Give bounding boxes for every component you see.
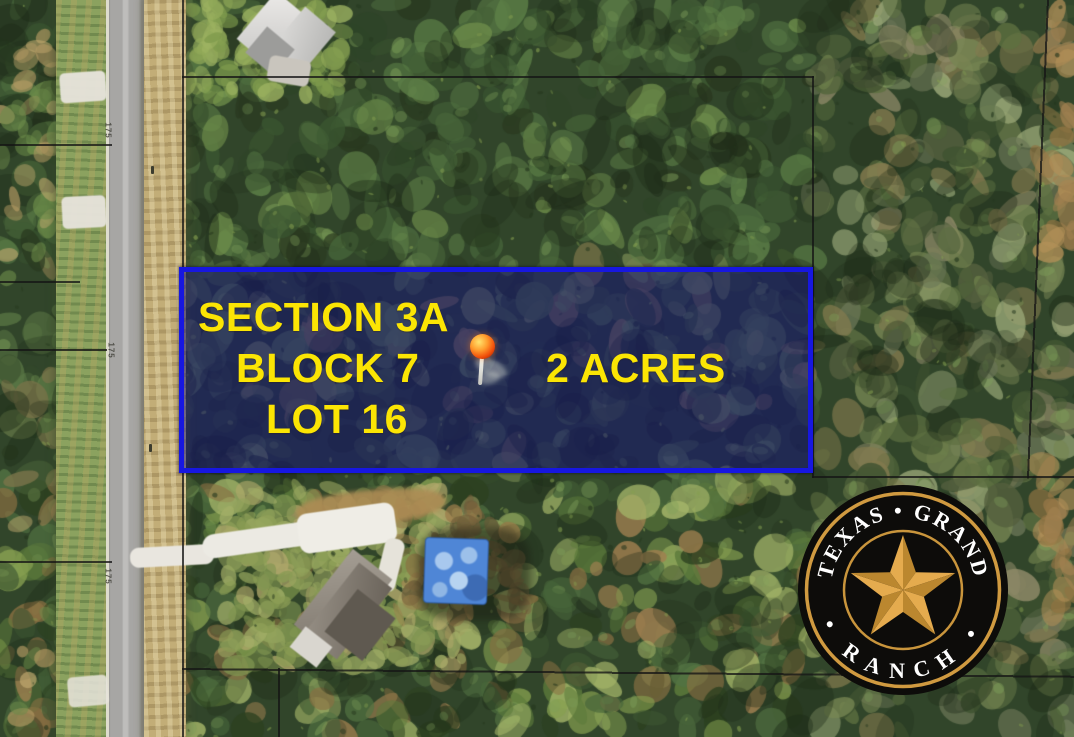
road	[56, 0, 186, 737]
parcel-line	[182, 76, 814, 78]
parcel-line	[0, 281, 80, 283]
parcel-line	[278, 668, 280, 737]
pin-head	[470, 334, 495, 359]
parcel-line	[0, 349, 107, 351]
pool-cover	[423, 537, 489, 605]
parcel-line	[0, 144, 112, 146]
utility-pole	[149, 444, 152, 452]
road-dimension-label: 175	[104, 568, 113, 584]
road-edge-stripe	[106, 0, 109, 737]
driveway-apron	[59, 70, 107, 103]
utility-pole	[151, 166, 154, 174]
road-dimension-label: 175	[107, 342, 116, 358]
driveway-apron	[61, 195, 107, 229]
road-dimension-label: 175	[104, 122, 113, 138]
road-shoulder-left	[56, 0, 106, 737]
parcel-line	[812, 476, 1074, 478]
road-asphalt	[106, 0, 144, 737]
lot-acreage-label: 2 ACRES	[546, 348, 726, 389]
parcel-line	[0, 561, 112, 563]
location-pin-icon	[458, 328, 512, 392]
lot-number-label: LOT 16	[266, 399, 408, 440]
texas-grand-ranch-logo: TEXAS • GRAND • RANCH •	[795, 482, 1011, 698]
aerial-lot-map: 175 175 175 SECTION 3A BLOCK 7 LOT 16 2 …	[0, 0, 1074, 737]
driveway-apron	[67, 674, 109, 707]
lot-block-label: BLOCK 7	[236, 348, 419, 389]
lot-section-label: SECTION 3A	[198, 297, 449, 338]
